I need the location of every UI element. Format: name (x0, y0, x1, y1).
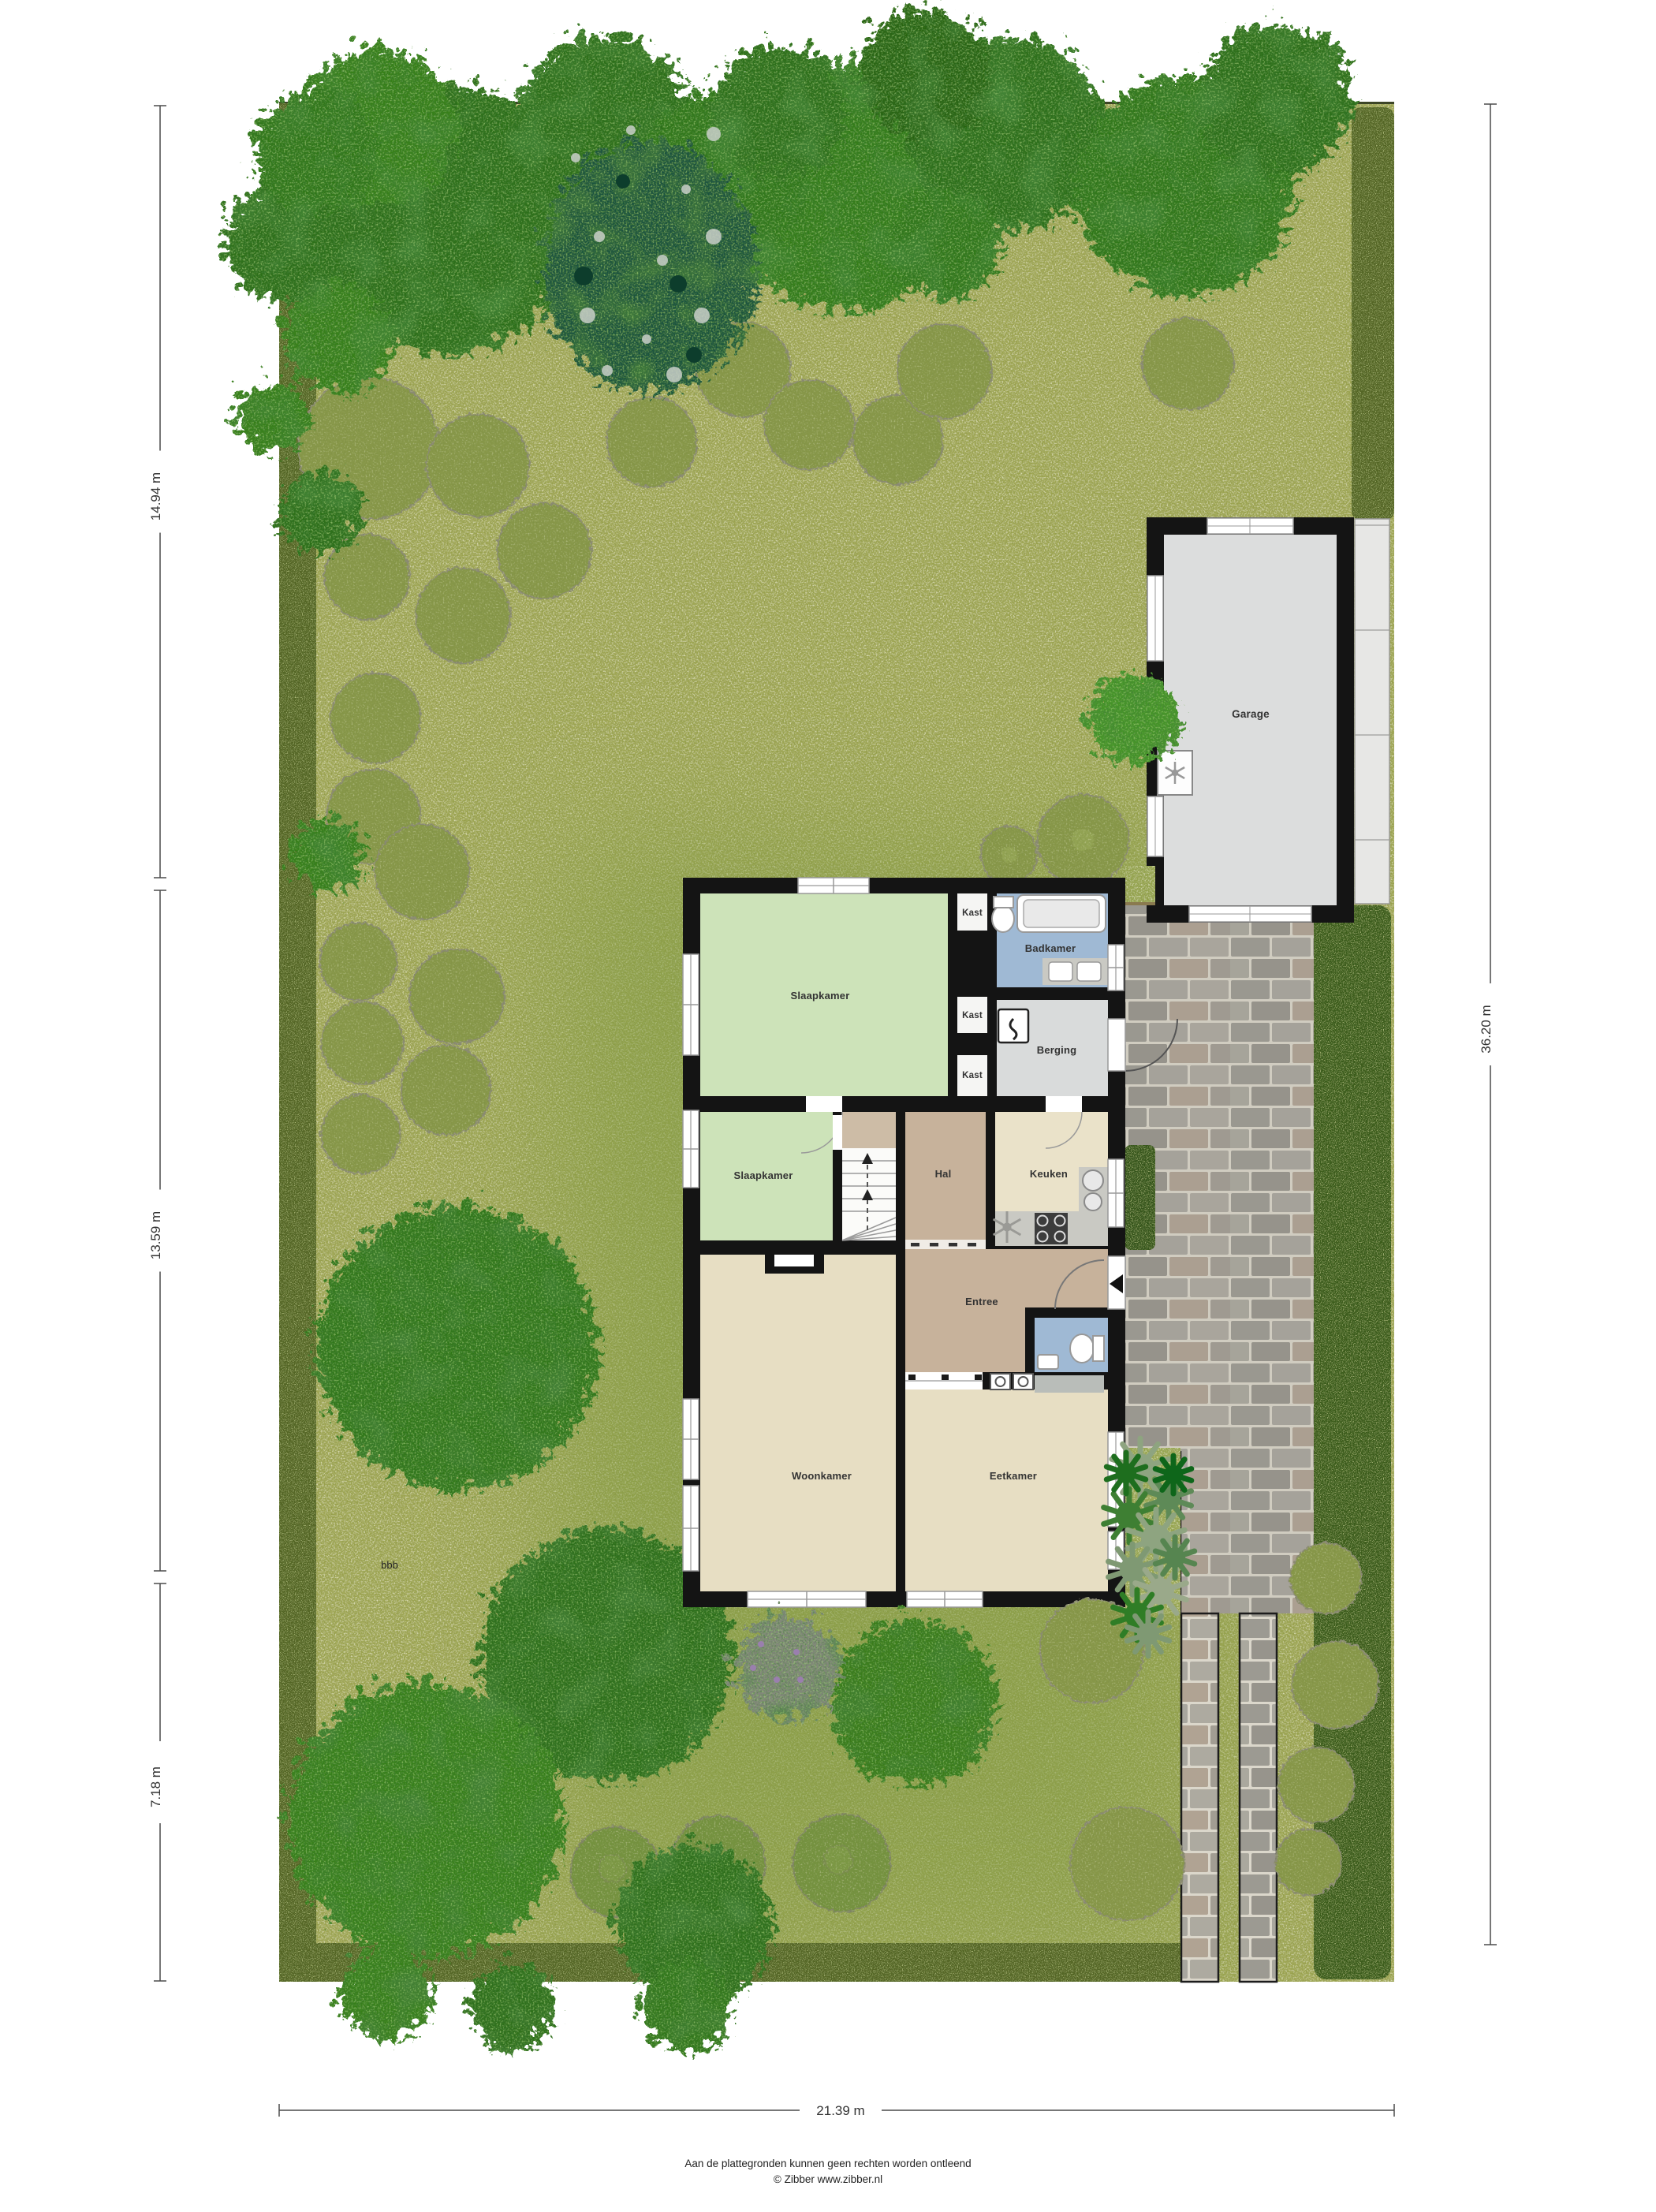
svg-text:Slaapkamer: Slaapkamer (791, 990, 850, 1002)
svg-text:Woonkamer: Woonkamer (792, 1470, 852, 1482)
svg-text:© Zibber www.zibber.nl: © Zibber www.zibber.nl (774, 2173, 882, 2185)
svg-text:36.20 m: 36.20 m (1479, 1005, 1494, 1053)
svg-text:Berging: Berging (1037, 1044, 1077, 1056)
svg-text:Kast: Kast (962, 908, 983, 918)
svg-text:21.39 m: 21.39 m (816, 2103, 864, 2118)
svg-text:Badkamer: Badkamer (1025, 942, 1076, 954)
svg-text:Kast: Kast (962, 1011, 983, 1020)
svg-text:13.59 m: 13.59 m (148, 1211, 163, 1259)
svg-text:7.18 m: 7.18 m (148, 1766, 163, 1807)
svg-text:Garage: Garage (1232, 708, 1270, 720)
svg-text:14.94 m: 14.94 m (148, 472, 163, 520)
svg-text:Entree: Entree (965, 1296, 998, 1307)
svg-text:bbb: bbb (381, 1559, 398, 1571)
svg-text:Kast: Kast (962, 1071, 983, 1080)
svg-text:Eetkamer: Eetkamer (990, 1470, 1037, 1482)
svg-text:Hal: Hal (935, 1168, 952, 1180)
svg-text:Aan de plattegronden kunnen ge: Aan de plattegronden kunnen geen rechten… (684, 2158, 971, 2169)
svg-text:Keuken: Keuken (1030, 1168, 1068, 1180)
svg-text:Slaapkamer: Slaapkamer (734, 1169, 793, 1181)
